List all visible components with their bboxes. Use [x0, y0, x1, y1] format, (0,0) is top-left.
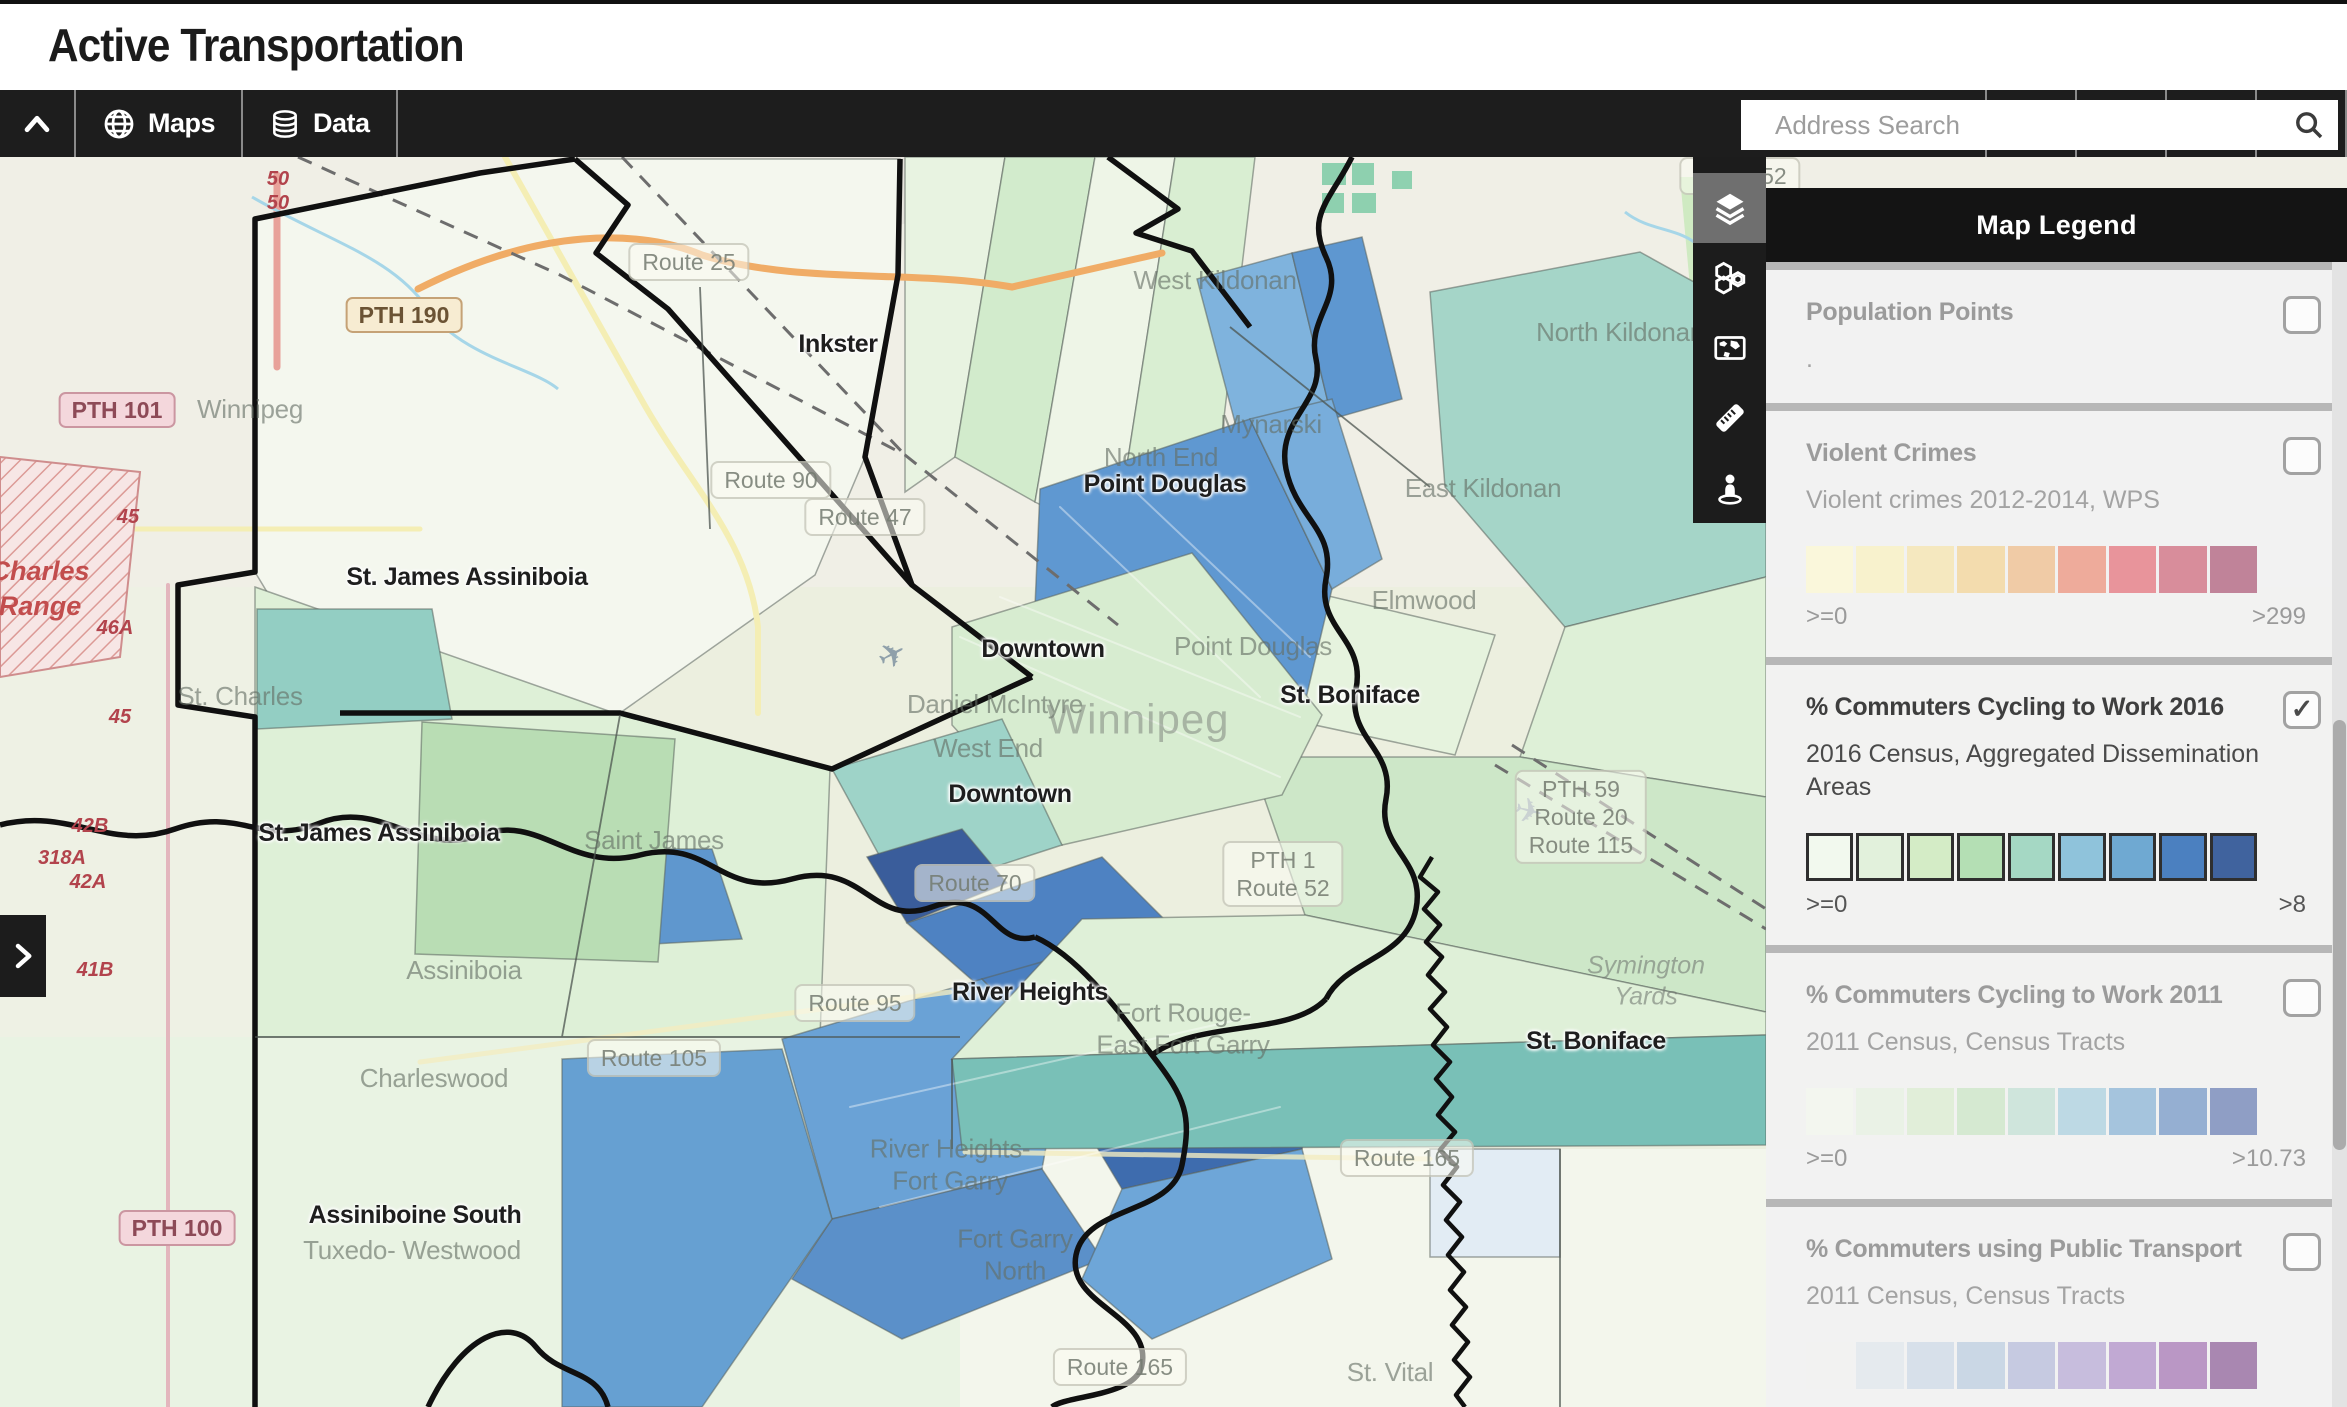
color-swatch: [2008, 1088, 2055, 1135]
range-max: >299: [2252, 603, 2306, 631]
legend-color-ramp: [1806, 546, 2257, 593]
color-swatch: [1907, 833, 1954, 881]
legend-color-ramp: [1806, 1088, 2257, 1135]
map-label: St. Vital: [1347, 1357, 1433, 1389]
color-swatch: [2058, 833, 2105, 881]
search-button[interactable]: [2280, 109, 2338, 141]
data-button-label: Data: [313, 108, 370, 139]
color-swatch: [1907, 1088, 1954, 1135]
color-swatch: [1806, 1088, 1853, 1135]
legend-color-ramp: [1806, 1342, 2257, 1389]
legend-section-public-transport: % Commuters using Public Transport2011 C…: [1766, 1207, 2347, 1407]
map-label: St. Charles: [177, 681, 302, 713]
map-label: Mynarski: [1220, 409, 1322, 441]
maps-button-label: Maps: [148, 108, 215, 139]
database-icon: [269, 107, 301, 141]
map-label: Route 47: [804, 498, 925, 536]
map-label: St. James Assiniboia: [346, 562, 587, 593]
map-label: PTH 100: [119, 1210, 236, 1246]
color-swatch: [2109, 546, 2156, 593]
map-label: Winnipeg: [1046, 693, 1229, 744]
layers-tool-button[interactable]: [1693, 173, 1766, 243]
data-button[interactable]: Data: [243, 90, 396, 157]
color-swatch: [2210, 546, 2257, 593]
map-label: Assiniboia: [406, 955, 522, 987]
legend-divider: [1766, 262, 2347, 270]
map-tool-rail: [1693, 103, 1766, 523]
search-icon: [2293, 109, 2325, 141]
app-header: Active Transportation: [0, 4, 2347, 90]
map-label: 42A: [70, 870, 107, 894]
color-swatch: [2058, 546, 2105, 593]
color-swatch: [1856, 1088, 1903, 1135]
toolbar-divider: [396, 90, 398, 157]
map-label: Fort Garry North: [957, 1223, 1072, 1286]
map-label: PTH 1 Route 52: [1222, 841, 1343, 907]
map-label: East Kildonan: [1405, 473, 1562, 505]
legend-section-subtitle: 2011 Census, Census Tracts: [1806, 1026, 2266, 1060]
legend-section-title: % Commuters Cycling to Work 2016: [1806, 693, 2257, 722]
color-swatch: [1806, 833, 1853, 881]
color-swatch: [2210, 1342, 2257, 1389]
map-label: Route 165: [1053, 1348, 1187, 1386]
color-swatch: [2008, 1342, 2055, 1389]
map-label: 45: [109, 705, 131, 729]
map-label: Elmwood: [1372, 585, 1477, 617]
hexagons-icon: [1711, 259, 1749, 297]
map-label: Symington Yards: [1587, 951, 1705, 1012]
color-swatch: [1907, 546, 1954, 593]
color-swatch: [1957, 546, 2004, 593]
color-swatch: [2058, 1342, 2105, 1389]
legend-section-title: % Commuters Cycling to Work 2011: [1806, 981, 2257, 1010]
legend-color-ramp: [1806, 833, 2257, 881]
measure-tool-button[interactable]: [1693, 383, 1766, 453]
page-title: Active Transportation: [48, 18, 464, 72]
color-swatch: [2210, 833, 2257, 881]
map-label: River Heights- Fort Garry: [870, 1133, 1031, 1196]
map-label: North Kildonan: [1536, 317, 1704, 349]
map-label: St. Boniface: [1280, 680, 1420, 711]
legend-divider: [1766, 945, 2347, 953]
map-label: Route 70: [914, 864, 1035, 902]
map-label: 45: [117, 505, 139, 529]
collapse-toolbar-button[interactable]: [0, 90, 74, 157]
legend-range: >=0>299: [1806, 603, 2306, 631]
layer-checkbox-public-transport[interactable]: [2283, 1233, 2321, 1271]
map-label: Charleswood: [360, 1063, 508, 1095]
map-label: Route 165: [1340, 1139, 1474, 1177]
color-swatch: [1856, 546, 1903, 593]
color-swatch: [2109, 1342, 2156, 1389]
map-label: Route 25: [628, 243, 749, 281]
color-swatch: [2109, 833, 2156, 881]
legend-section-cycling-2011: % Commuters Cycling to Work 20112011 Cen…: [1766, 953, 2347, 1199]
address-search-input[interactable]: [1741, 99, 2280, 151]
map-label: Tuxedo- Westwood: [303, 1235, 521, 1267]
color-swatch: [2159, 1088, 2206, 1135]
legend-body: Population Points.Violent CrimesViolent …: [1766, 262, 2347, 1407]
color-swatch: [1957, 1342, 2004, 1389]
legend-divider: [1766, 657, 2347, 665]
legend-range: >=0>10.73: [1806, 1145, 2306, 1173]
range-max: >10.73: [2232, 1145, 2306, 1173]
address-search-box: [1741, 100, 2338, 150]
legend-scrollbar-thumb[interactable]: [2333, 720, 2346, 1150]
map-label: Saint James: [584, 825, 724, 857]
map-label: Charles Range: [0, 554, 90, 624]
color-swatch: [2008, 833, 2055, 881]
street-view-tool-button[interactable]: [1693, 453, 1766, 523]
globe-icon: [102, 107, 136, 141]
legend-section-title: Population Points: [1806, 298, 2257, 327]
legend-section-subtitle: .: [1806, 343, 2266, 377]
map-label: St. James Assiniboia: [258, 818, 499, 849]
map-label: Fort Rouge- East Fort Garry: [1096, 997, 1269, 1060]
range-min: >=0: [1806, 603, 1847, 631]
layer-checkbox-cycling-2016[interactable]: ✓: [2283, 691, 2321, 729]
street-view-icon: [1712, 470, 1748, 506]
color-swatch: [2159, 1342, 2206, 1389]
legend-title: Map Legend: [1766, 188, 2347, 262]
layers-icon: [1712, 190, 1748, 226]
color-swatch: [1856, 1342, 1903, 1389]
layer-checkbox-cycling-2011[interactable]: [2283, 979, 2321, 1017]
collapse-left-panel-button[interactable]: [0, 915, 46, 997]
color-swatch: [2159, 546, 2206, 593]
color-swatch: [1856, 833, 1903, 881]
map-label: Point Douglas: [1174, 631, 1332, 663]
legend-section-violent-crimes: Violent CrimesViolent crimes 2012-2014, …: [1766, 411, 2347, 657]
range-min: >=0: [1806, 891, 1847, 919]
color-swatch: [1957, 833, 2004, 881]
map-label: Inkster: [798, 329, 877, 360]
map-label: 50: [267, 191, 289, 215]
maps-button[interactable]: Maps: [76, 90, 241, 157]
map-label: 41B: [77, 958, 114, 982]
layer-checkbox-population-points[interactable]: [2283, 296, 2321, 334]
map-label: Downtown: [981, 634, 1104, 665]
legend-section-subtitle: Violent crimes 2012-2014, WPS: [1806, 484, 2266, 518]
legend-section-cycling-2016: % Commuters Cycling to Work 2016✓2016 Ce…: [1766, 665, 2347, 946]
color-swatch: [2159, 833, 2206, 881]
map-label: St. Boniface: [1526, 1026, 1666, 1057]
map-label: 42B: [72, 814, 109, 838]
legend-section-subtitle: 2011 Census, Census Tracts: [1806, 1280, 2266, 1314]
world-map-icon: [1712, 330, 1748, 366]
map-label: Downtown: [948, 779, 1071, 810]
map-label: Route 95: [794, 984, 915, 1022]
legend-scrollbar[interactable]: [2332, 262, 2347, 1407]
map-label: West End: [933, 733, 1043, 765]
map-label: Assiniboine South: [309, 1200, 522, 1231]
legend-range: >=0>8: [1806, 891, 2306, 919]
color-swatch: [2109, 1088, 2156, 1135]
map-legend-panel: Map Legend Population Points.Violent Cri…: [1766, 188, 2347, 1407]
basemap-tool-button[interactable]: [1693, 313, 1766, 383]
color-swatch: [1806, 1342, 1853, 1389]
layer-checkbox-violent-crimes[interactable]: [2283, 437, 2321, 475]
map-label: West Kildonan: [1133, 265, 1296, 297]
legend-divider: [1766, 403, 2347, 411]
map-label: Route 90: [710, 461, 831, 499]
map-label: 46A: [97, 616, 134, 640]
map-label: 318A: [38, 846, 86, 870]
chevron-right-icon: [8, 941, 38, 971]
legend-section-title: % Commuters using Public Transport: [1806, 1235, 2257, 1264]
map-label: Winnipeg: [197, 394, 303, 426]
map-label: PTH 59 Route 20 Route 115: [1515, 770, 1647, 864]
color-swatch: [1907, 1342, 1954, 1389]
map-label: PTH 190: [346, 297, 463, 333]
map-label: Route 105: [587, 1039, 721, 1077]
legend-divider: [1766, 1199, 2347, 1207]
color-swatch: [2058, 1088, 2105, 1135]
color-swatch: [2210, 1088, 2257, 1135]
color-swatch: [1957, 1088, 2004, 1135]
chevron-up-icon: [20, 107, 54, 141]
ruler-icon: [1711, 399, 1749, 437]
map-label: River Heights: [952, 977, 1108, 1008]
map-label: North End: [1104, 442, 1218, 474]
map-label: 50: [267, 167, 289, 191]
legend-section-subtitle: 2016 Census, Aggregated Dissemination Ar…: [1806, 738, 2266, 806]
color-swatch: [2008, 546, 2055, 593]
map-label: PTH 101: [59, 392, 176, 428]
legend-section-population-points: Population Points.: [1766, 270, 2347, 403]
range-min: >=0: [1806, 1145, 1847, 1173]
legend-section-title: Violent Crimes: [1806, 439, 2257, 468]
thematic-clusters-tool-button[interactable]: [1693, 243, 1766, 313]
color-swatch: [1806, 546, 1853, 593]
range-max: >8: [2279, 891, 2306, 919]
